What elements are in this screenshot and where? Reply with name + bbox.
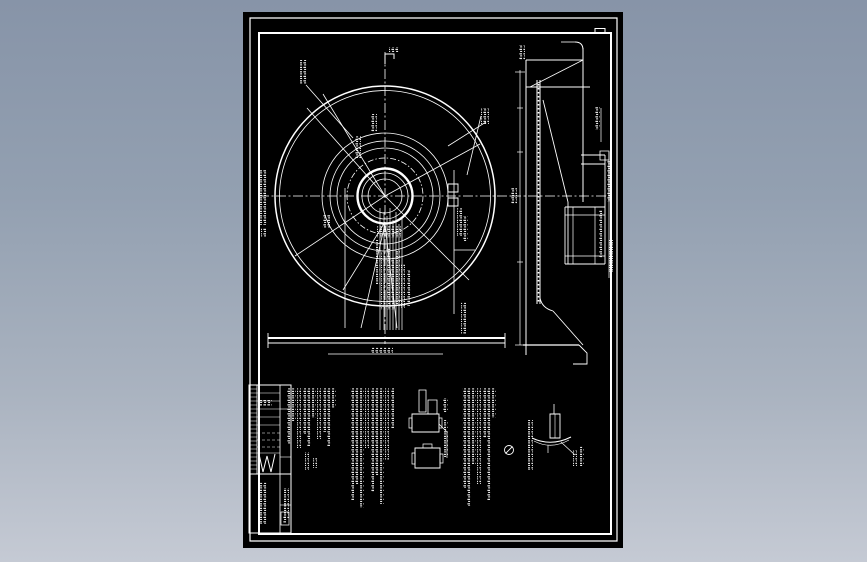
technical-notes-text-noise <box>375 388 379 476</box>
technical-notes-text-noise <box>487 388 491 500</box>
detail-views-text-noise <box>443 398 448 412</box>
section-view-text-noise <box>519 45 525 60</box>
drawing-sheet <box>243 12 623 548</box>
front-view-wheel-shape <box>448 198 458 206</box>
front-view-wheel-text-noise <box>481 108 489 124</box>
technical-notes-text-noise <box>305 452 309 470</box>
technical-notes-text-noise <box>467 388 471 506</box>
front-view-wheel <box>259 47 513 354</box>
technical-notes-text-noise <box>477 388 481 484</box>
title-block-text-noise <box>283 515 287 523</box>
technical-notes-text-noise <box>370 388 374 492</box>
cad-viewer-canvas <box>0 0 867 562</box>
title-block-text-noise <box>260 400 272 406</box>
section-view-shape <box>575 42 583 50</box>
technical-notes-text-noise <box>385 388 389 460</box>
front-view-wheel-text-noise <box>260 170 267 225</box>
technical-notes-text-noise <box>350 388 354 500</box>
technical-notes-text-noise <box>313 458 317 468</box>
front-view-wheel-text-noise <box>461 302 466 334</box>
detail-views-shape <box>561 442 575 455</box>
technical-notes-text-noise <box>307 388 311 446</box>
technical-notes-text-noise <box>287 388 291 444</box>
section-view-shape <box>553 311 583 345</box>
technical-notes-text-noise <box>365 388 369 448</box>
technical-notes-text-noise <box>297 388 301 448</box>
front-view-wheel-shape <box>295 196 385 256</box>
technical-notes-text-noise <box>492 388 496 418</box>
title-block-text-noise <box>284 488 289 518</box>
technical-notes-text-noise <box>327 388 331 446</box>
detail-views-shape <box>415 448 440 468</box>
front-view-wheel-text-noise <box>381 252 385 310</box>
technical-notes-text-noise <box>390 388 394 428</box>
detail-views-shape <box>440 454 443 463</box>
front-view-wheel-text-noise <box>463 216 468 242</box>
detail-views-shape <box>423 444 432 448</box>
technical-notes-text-noise <box>482 388 486 438</box>
technical-notes-text-noise <box>332 388 336 408</box>
section-view-text-noise <box>599 210 603 258</box>
technical-notes-text-noise <box>302 388 306 434</box>
title-block-shape <box>259 454 275 472</box>
technical-notes-text-noise <box>380 388 384 504</box>
detail-views-text-noise <box>528 420 533 470</box>
sheet-frame-shape <box>259 33 611 534</box>
front-view-wheel-shape <box>385 54 394 64</box>
section-view-shape <box>543 100 568 202</box>
section-view-text-noise <box>511 188 517 204</box>
front-view-wheel-text-noise <box>376 240 380 284</box>
front-view-wheel-text-noise <box>389 47 399 52</box>
technical-notes-text-noise <box>322 388 326 432</box>
detail-views-shape <box>428 400 437 414</box>
section-view-text-noise <box>595 106 600 130</box>
section-view <box>511 42 613 364</box>
detail-views-shape <box>419 390 426 412</box>
technical-notes <box>287 388 496 508</box>
front-view-wheel-text-noise <box>391 258 395 310</box>
section-view-shape <box>530 60 583 87</box>
technical-notes-text-noise <box>312 388 316 418</box>
front-view-wheel-text-noise <box>377 226 401 238</box>
technical-notes-text-noise <box>462 388 466 488</box>
front-view-wheel-text-noise <box>261 228 266 237</box>
section-view-shape <box>540 298 553 311</box>
technical-notes-text-noise <box>360 388 364 508</box>
title-block <box>249 385 291 533</box>
drawing-svg <box>243 12 623 548</box>
technical-notes-text-noise <box>292 388 296 422</box>
front-view-wheel-text-noise <box>386 248 390 310</box>
detail-views-text-noise <box>444 420 448 458</box>
technical-notes-text-noise <box>317 388 321 440</box>
section-view-shape <box>573 345 587 364</box>
section-view-shape <box>600 151 609 160</box>
front-view-wheel-text-noise <box>371 114 377 132</box>
front-view-wheel-text-noise <box>457 208 462 236</box>
title-block-text-noise <box>260 482 267 524</box>
front-view-wheel-text-noise <box>355 136 361 158</box>
front-view-wheel-text-noise <box>371 347 393 353</box>
detail-views-shape <box>409 418 412 428</box>
front-view-wheel-text-noise <box>300 60 307 84</box>
detail-views-text-noise <box>573 450 577 466</box>
section-view-text-noise <box>609 240 613 272</box>
detail-views-shape <box>412 453 415 464</box>
detail-views <box>409 390 584 470</box>
technical-notes-text-noise <box>355 388 359 484</box>
technical-notes-text-noise <box>472 388 476 464</box>
section-view-text-noise <box>606 160 610 202</box>
detail-views-shape <box>506 447 513 454</box>
front-view-wheel-text-noise <box>401 264 405 308</box>
front-view-wheel-text-noise <box>396 250 400 306</box>
detail-views-shape <box>412 414 439 432</box>
front-view-wheel-text-noise <box>406 270 411 306</box>
front-view-wheel-text-noise <box>322 215 330 228</box>
detail-views-text-noise <box>580 446 584 466</box>
front-view-wheel-shape <box>448 184 458 192</box>
